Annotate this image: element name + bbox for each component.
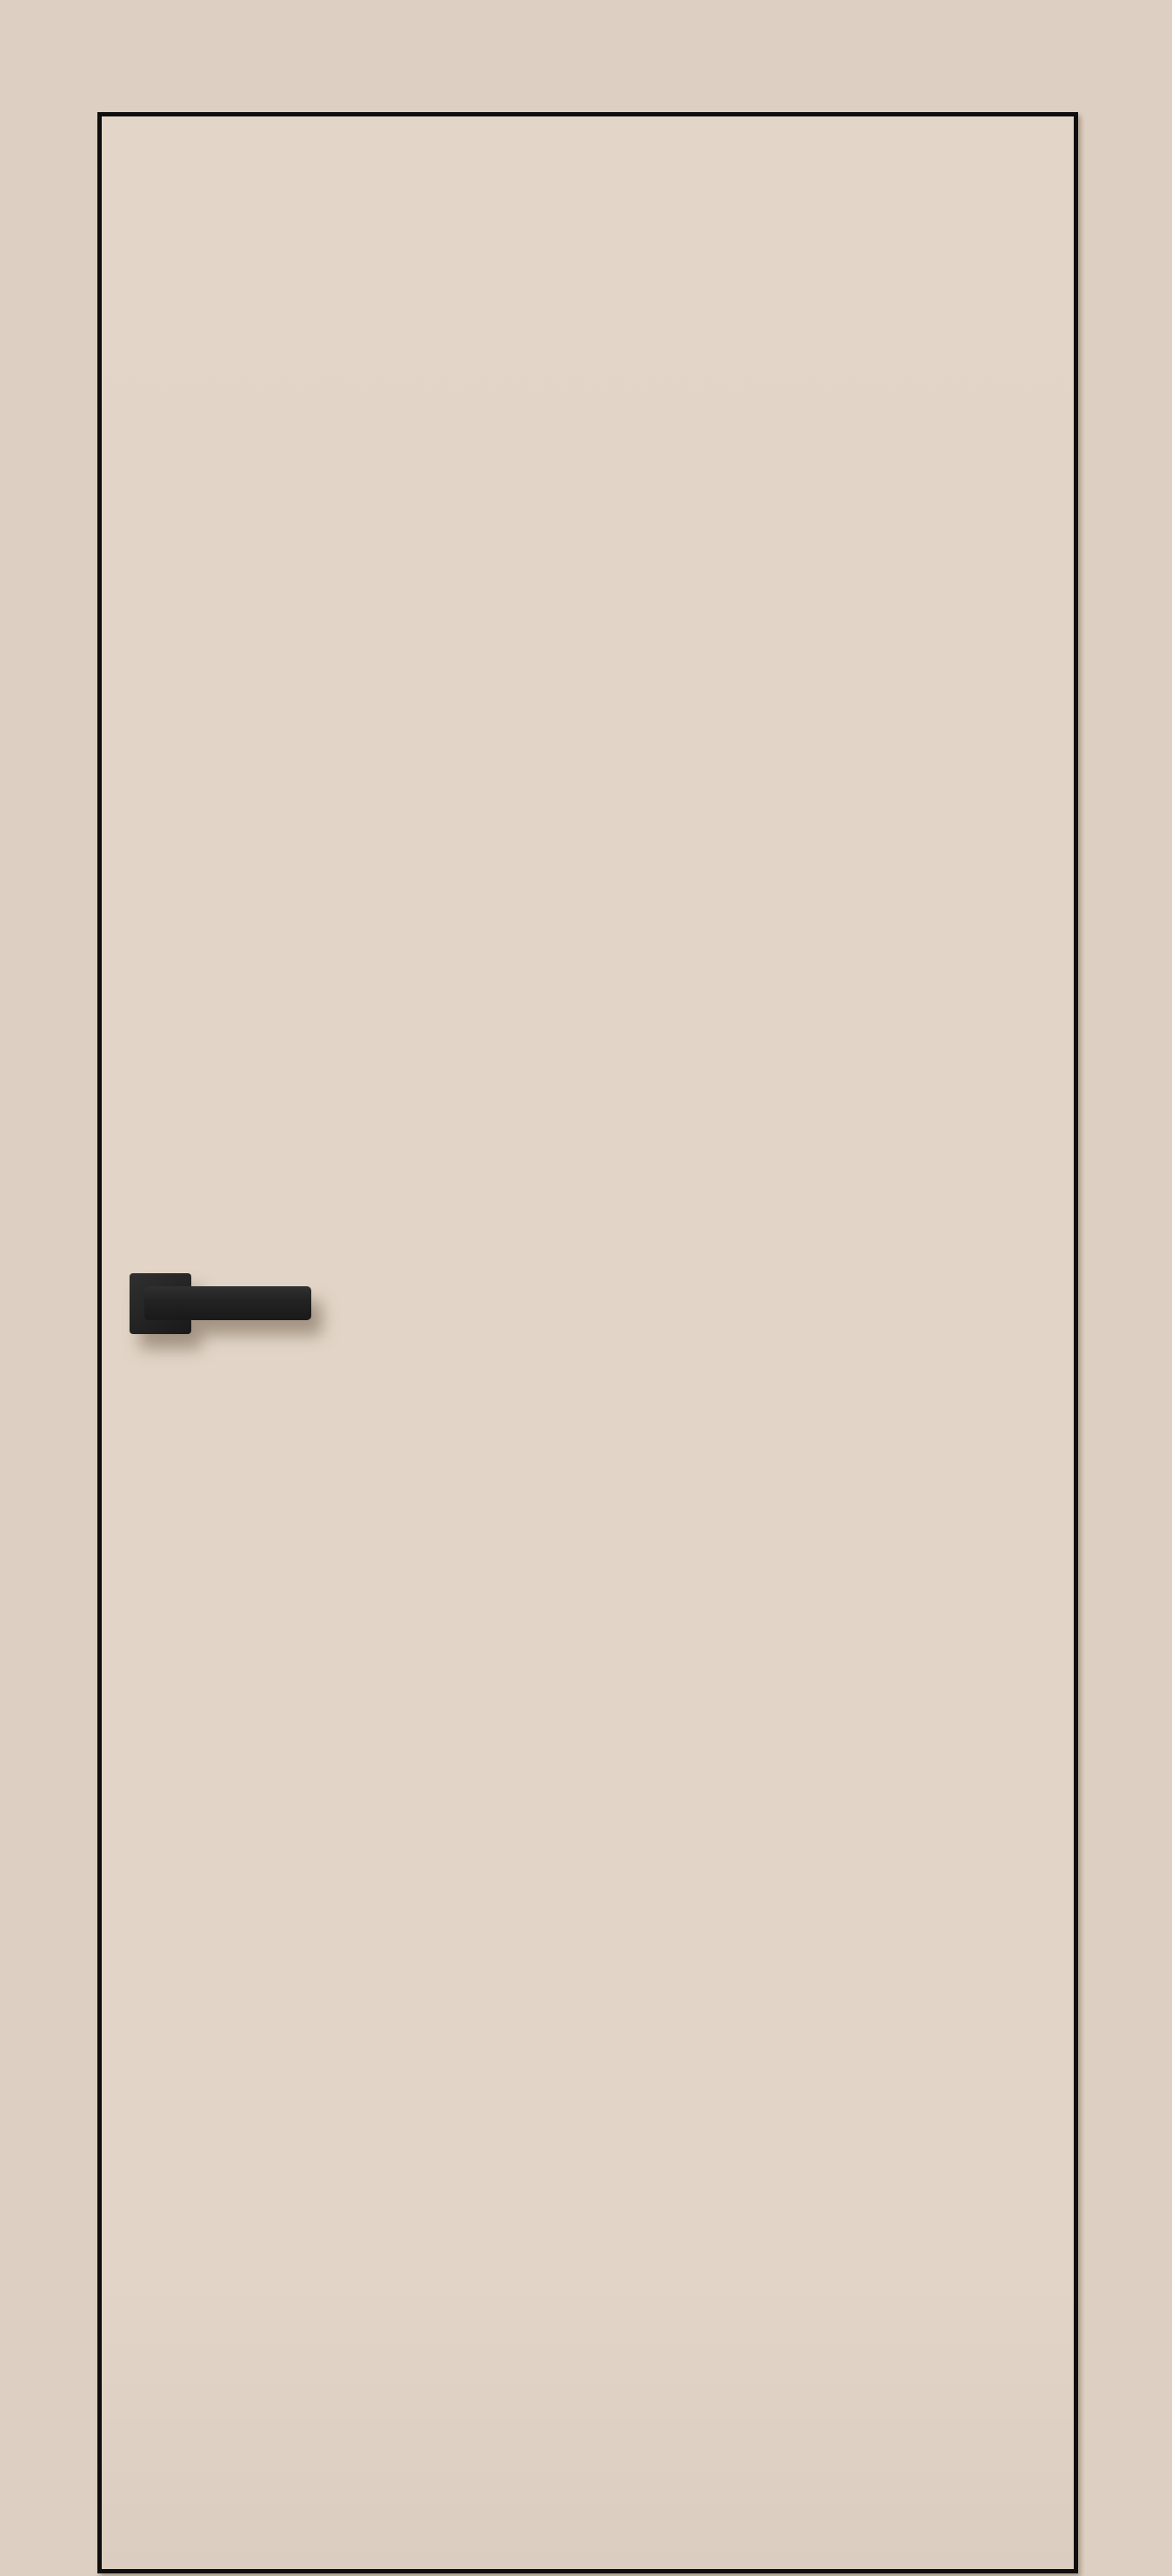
door-surface-sheen bbox=[102, 116, 1074, 2569]
door-leaf bbox=[97, 112, 1078, 2573]
door-product-image bbox=[0, 0, 1172, 2576]
